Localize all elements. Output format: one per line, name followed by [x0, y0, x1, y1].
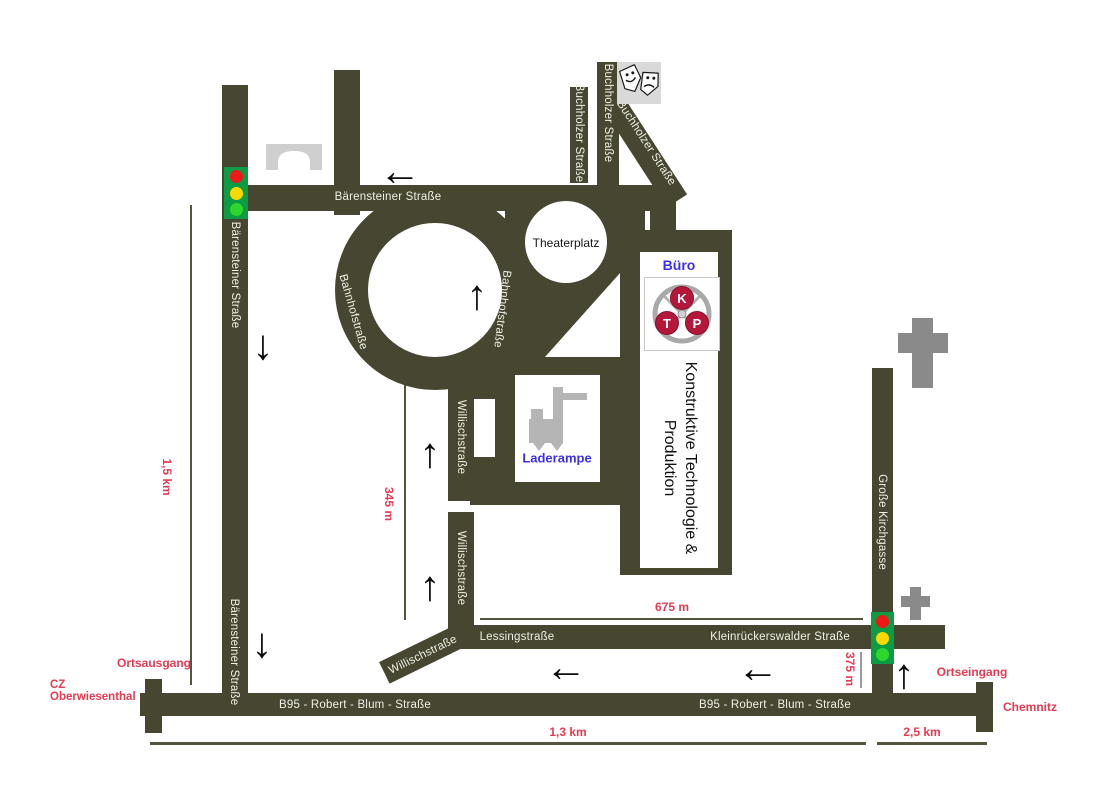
signal-green-light: [876, 648, 889, 661]
arrow-up-icon: ↑: [420, 565, 441, 607]
measure-line-2-5km: [877, 742, 987, 745]
logo-letter-t: T: [663, 316, 671, 331]
arrow-left-icon: ←: [379, 150, 421, 192]
route-map: Theaterplatz Büro K T P Konstruktive Tec…: [0, 0, 1100, 800]
street-label-b95-east: B95 - Robert - Blum - Straße: [699, 699, 851, 711]
company-name-label: Konstruktive Technologie & Produktion: [659, 338, 701, 578]
street-label-kleinrueckerswalder: Kleinrückerswalder Straße: [710, 631, 850, 643]
arrow-up-icon: ↑: [420, 432, 441, 474]
street-label-lessingstrasse: Lessingstraße: [480, 631, 555, 643]
signal-green-light: [230, 203, 243, 216]
forklift-icon: [527, 385, 587, 451]
street-label-willisch-lower: Willischstraße: [455, 531, 467, 605]
distance-675m: 675 m: [655, 600, 689, 614]
yard-pocket: [474, 399, 495, 457]
signal-yellow-light: [230, 187, 243, 200]
logo-letter-k: K: [677, 291, 687, 306]
measure-line-375m: [860, 652, 862, 688]
company-name-line2: Produktion: [659, 338, 680, 578]
arrow-down-icon: ↓: [253, 324, 274, 366]
measure-line-345m: [404, 382, 406, 620]
theater-masks-icon: [617, 62, 661, 104]
label-cz-line1: CZ: [50, 680, 136, 692]
buero-label: Büro: [663, 257, 696, 273]
bridge-icon: [266, 138, 322, 170]
b95-boundary-bar-west: [145, 679, 162, 733]
road-buchholzer-stub: [650, 188, 676, 232]
street-label-baerensteiner-vertical-north: Bärensteiner Straße: [229, 222, 241, 329]
theaterplatz-label: Theaterplatz: [533, 236, 600, 250]
signal-red-light: [230, 170, 243, 183]
logo-letter-p: P: [693, 316, 702, 331]
distance-375m: 375 m: [843, 652, 857, 686]
b95-boundary-bar-east: [976, 682, 993, 732]
arrow-left-icon: ←: [737, 647, 779, 689]
measure-line-1-5km: [190, 205, 192, 685]
street-label-grosse-kirchgasse: Große Kirchgasse: [876, 474, 888, 570]
laderampe-box: [515, 375, 600, 482]
label-cz-line2: Oberwiesenthal: [50, 692, 136, 704]
signal-red-light: [876, 615, 889, 628]
street-label-willisch-upper: Willischstraße: [455, 400, 467, 474]
traffic-light-baerensteiner: [224, 167, 248, 219]
label-ortsausgang: Ortsausgang: [117, 656, 191, 670]
label-chemnitz: Chemnitz: [1003, 700, 1057, 714]
measure-line-1-3km: [150, 742, 866, 745]
distance-2-5km: 2,5 km: [903, 725, 940, 739]
street-label-buchholzer-2: Buchholzer Straße: [602, 64, 614, 163]
arrow-up-icon: ↑: [894, 653, 915, 695]
distance-1-5km: 1,5 km: [160, 458, 174, 495]
road-b95: [140, 693, 993, 716]
traffic-light-kirchgasse: [871, 612, 894, 664]
arrow-up-icon: ↑: [467, 274, 488, 316]
distance-345m: 345 m: [382, 487, 396, 521]
signal-yellow-light: [876, 632, 889, 645]
label-ortseingang: Ortseingang: [937, 665, 1008, 679]
distance-1-3km: 1,3 km: [549, 725, 586, 739]
laderampe-label: Laderampe: [522, 451, 591, 466]
street-label-b95-west: B95 - Robert - Blum - Straße: [279, 699, 431, 711]
street-label-baerensteiner-vertical-south: Bärensteiner Straße: [228, 599, 240, 706]
label-cz-oberwiesenthal: CZ Oberwiesenthal: [50, 680, 136, 703]
street-label-buchholzer-1: Buchholzer Straße: [573, 84, 585, 183]
arrow-left-icon: ←: [545, 646, 587, 688]
arrow-down-icon: ↓: [252, 622, 273, 664]
measure-line-675m: [480, 618, 863, 620]
company-name-line1: Konstruktive Technologie &: [680, 338, 701, 578]
